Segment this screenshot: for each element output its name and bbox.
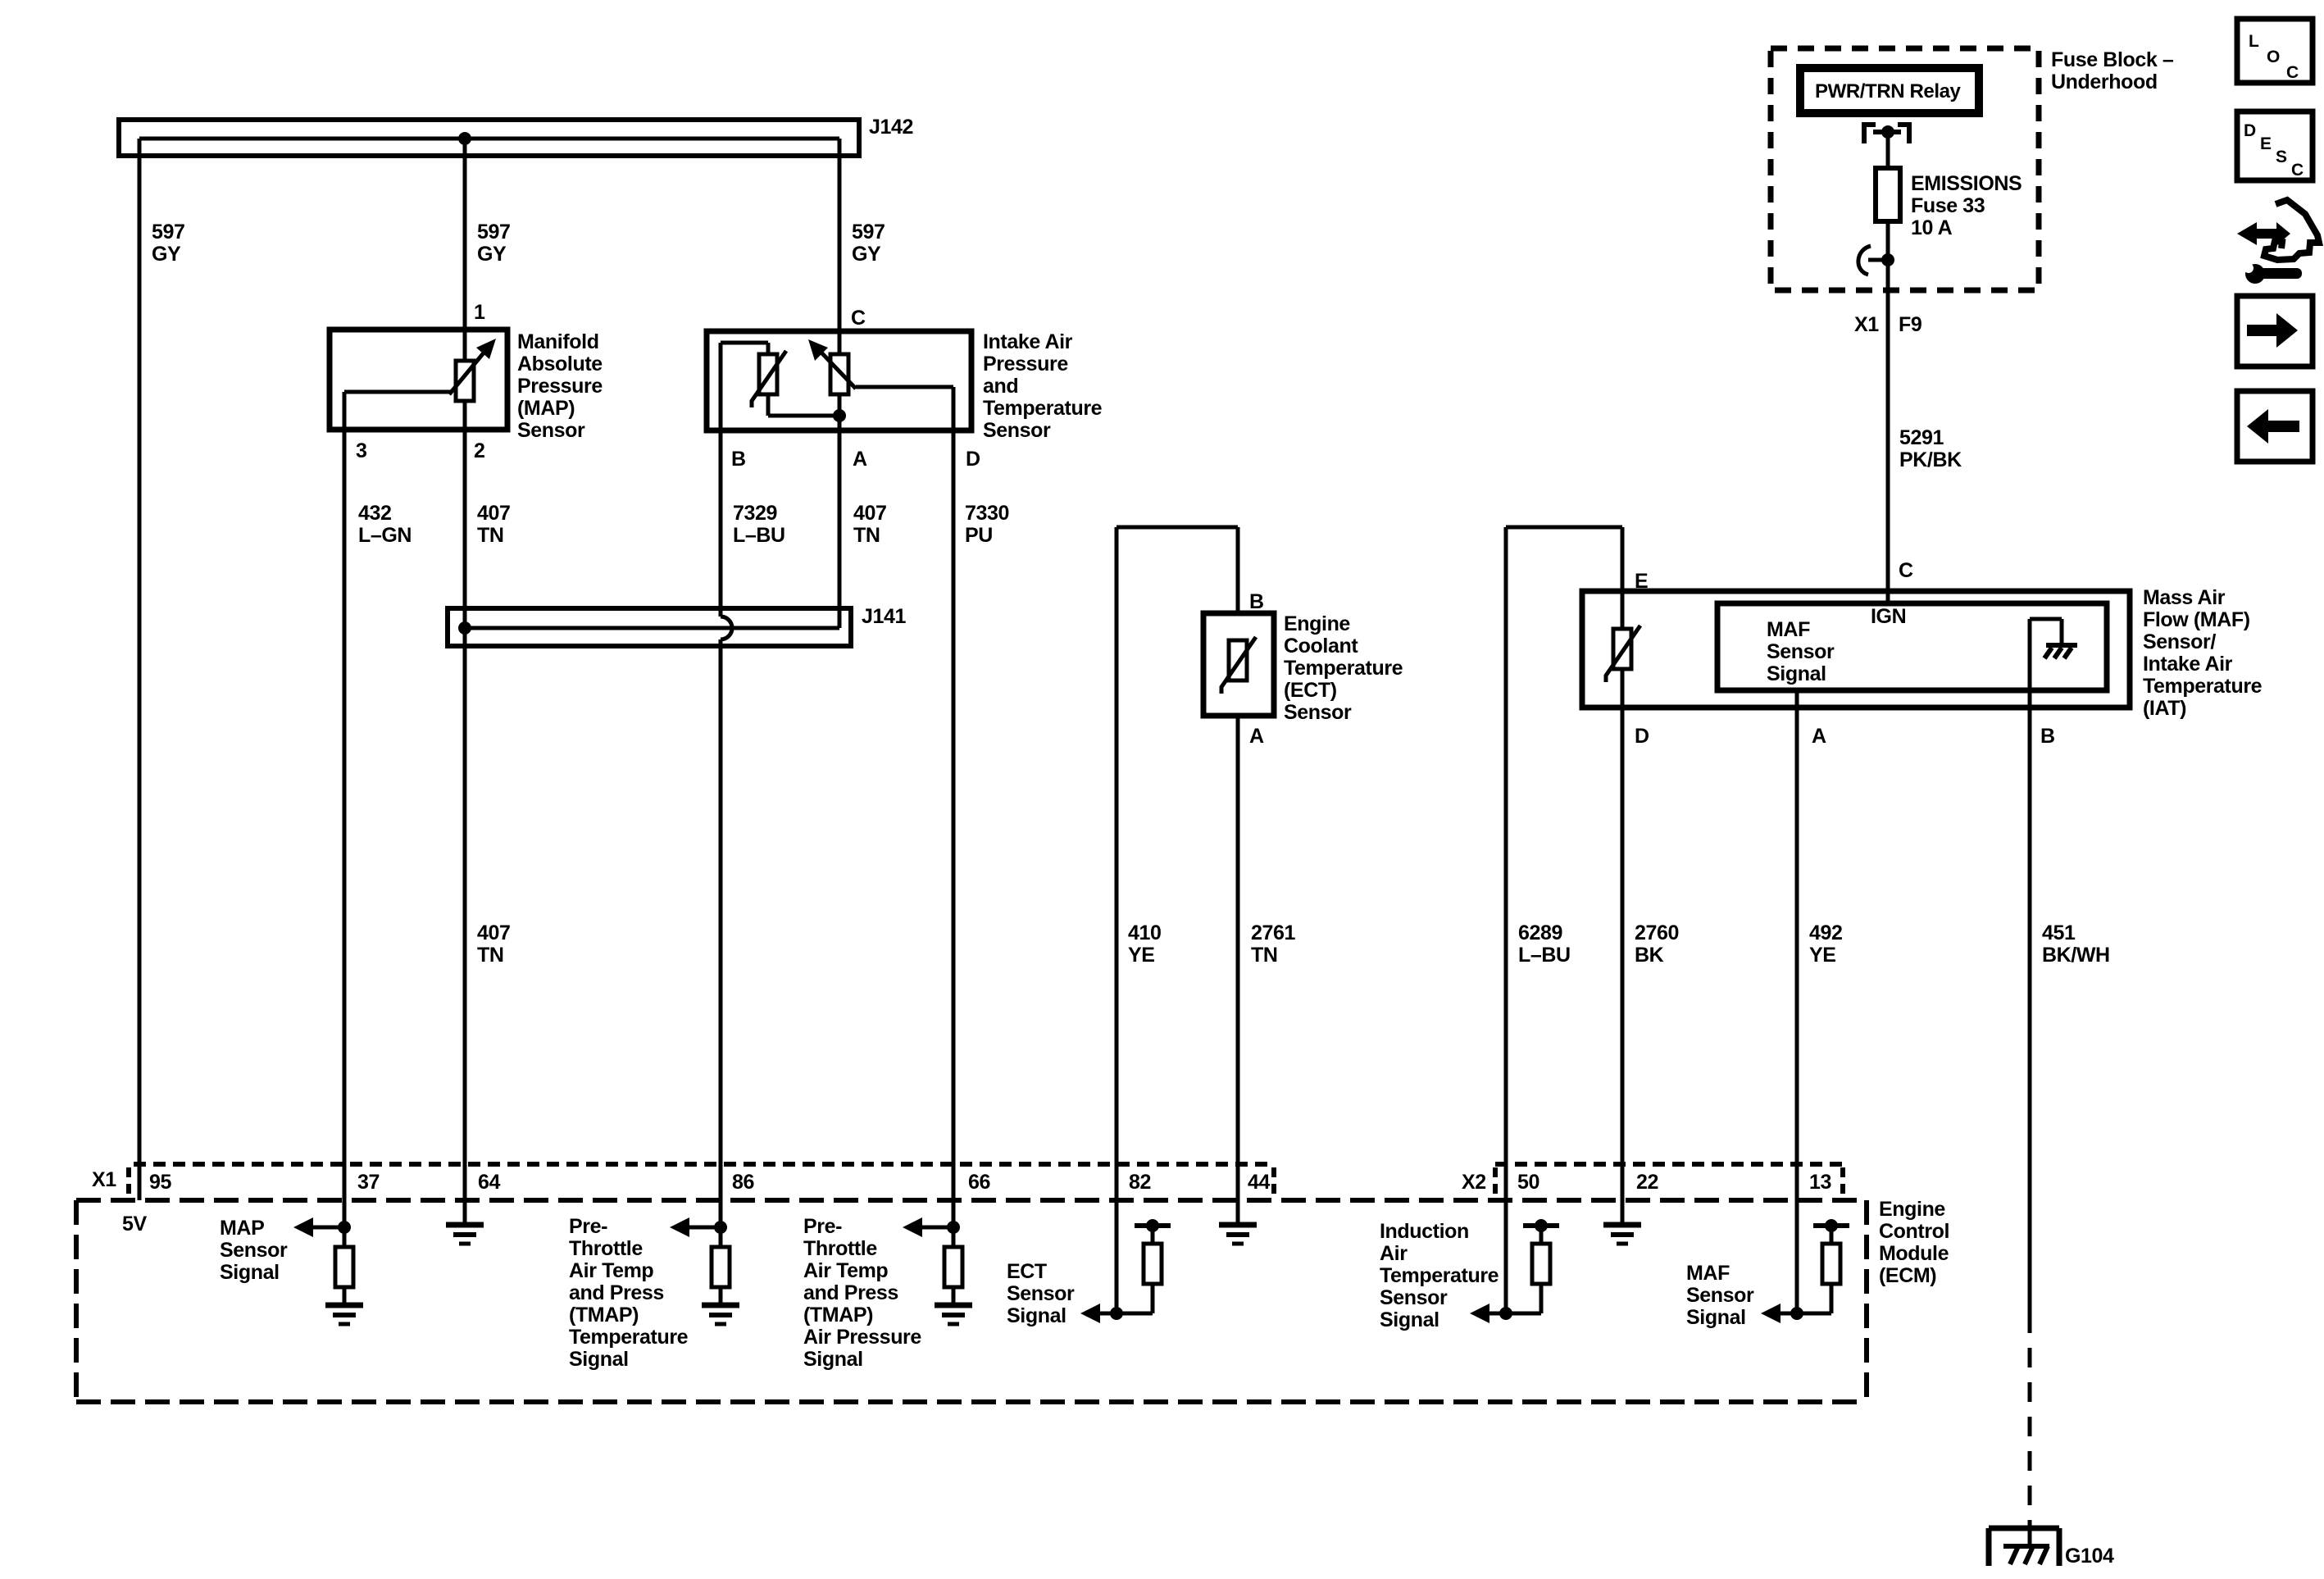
svg-text:C: C (2291, 161, 2304, 180)
svg-text:410: 410 (1128, 921, 1162, 944)
svg-text:MAF: MAF (1767, 618, 1810, 641)
svg-text:Temperature: Temperature (569, 1326, 689, 1349)
svg-text:Mass Air: Mass Air (2143, 586, 2226, 609)
svg-text:Sensor: Sensor (517, 419, 585, 442)
svg-text:5291: 5291 (1899, 426, 1944, 449)
svg-text:Signal: Signal (569, 1348, 629, 1371)
svg-text:E: E (1635, 570, 1648, 593)
svg-text:(ECT): (ECT) (1284, 679, 1337, 702)
svg-text:Sensor/: Sensor/ (2143, 630, 2216, 653)
svg-text:C: C (1899, 559, 1913, 582)
svg-text:D: D (2244, 121, 2256, 140)
svg-text:Signal: Signal (803, 1348, 863, 1371)
svg-text:Flow (MAF): Flow (MAF) (2143, 608, 2250, 631)
svg-text:and Press: and Press (803, 1281, 898, 1304)
svg-text:J141: J141 (862, 605, 907, 628)
svg-text:ECT: ECT (1007, 1260, 1047, 1283)
svg-text:PU: PU (965, 524, 993, 547)
svg-text:S: S (2276, 148, 2287, 166)
svg-text:J142: J142 (869, 116, 913, 139)
svg-text:Sensor: Sensor (220, 1239, 288, 1262)
svg-text:Signal: Signal (1380, 1308, 1439, 1331)
svg-text:X1: X1 (92, 1168, 116, 1191)
svg-text:L–GN: L–GN (358, 524, 412, 547)
svg-text:YE: YE (1128, 944, 1155, 967)
svg-text:Module: Module (1879, 1242, 1949, 1265)
svg-text:Intake Air: Intake Air (983, 330, 1073, 353)
svg-text:5V: 5V (122, 1213, 148, 1235)
svg-text:Fuse 33: Fuse 33 (1911, 194, 1985, 217)
svg-text:Sensor: Sensor (1380, 1286, 1448, 1309)
svg-text:F9: F9 (1899, 313, 1922, 336)
svg-text:2761: 2761 (1251, 921, 1296, 944)
svg-text:86: 86 (732, 1171, 754, 1194)
svg-text:(ECM): (ECM) (1879, 1264, 1936, 1287)
svg-text:82: 82 (1129, 1171, 1151, 1194)
svg-text:407: 407 (477, 921, 511, 944)
svg-text:X1: X1 (1854, 313, 1879, 336)
svg-text:Signal: Signal (1007, 1304, 1066, 1327)
svg-text:50: 50 (1517, 1171, 1539, 1194)
svg-text:Engine: Engine (1879, 1198, 1945, 1221)
svg-text:(IAT): (IAT) (2143, 697, 2186, 720)
svg-text:3: 3 (356, 439, 367, 462)
svg-text:451: 451 (2042, 921, 2076, 944)
svg-text:Sensor: Sensor (983, 419, 1051, 442)
svg-text:PK/BK: PK/BK (1899, 448, 1962, 471)
svg-text:B: B (1249, 590, 1264, 613)
svg-text:O: O (2267, 48, 2280, 66)
svg-text:GY: GY (852, 243, 881, 266)
svg-text:G104: G104 (2065, 1545, 2114, 1568)
svg-text:Coolant: Coolant (1284, 635, 1358, 658)
svg-text:L–BU: L–BU (733, 524, 785, 547)
svg-text:Temperature: Temperature (1284, 657, 1403, 680)
svg-text:EMISSIONS: EMISSIONS (1911, 172, 2022, 195)
svg-text:Underhood: Underhood (2051, 71, 2158, 93)
svg-text:Air: Air (1380, 1242, 1408, 1265)
svg-text:GY: GY (152, 243, 181, 266)
svg-text:37: 37 (357, 1171, 380, 1194)
svg-text:YE: YE (1809, 944, 1836, 967)
svg-text:Signal: Signal (220, 1261, 280, 1284)
svg-text:GY: GY (477, 243, 507, 266)
svg-text:Intake Air: Intake Air (2143, 653, 2233, 676)
svg-text:Sensor: Sensor (1686, 1284, 1754, 1307)
svg-text:597: 597 (152, 221, 185, 243)
svg-text:(MAP): (MAP) (517, 397, 575, 420)
svg-text:6289: 6289 (1518, 921, 1562, 944)
svg-text:Temperature: Temperature (983, 397, 1103, 420)
svg-text:44: 44 (1248, 1171, 1271, 1194)
svg-text:Air Temp: Air Temp (569, 1259, 653, 1282)
svg-text:Absolute: Absolute (517, 353, 603, 375)
svg-text:Signal: Signal (1686, 1306, 1746, 1329)
svg-text:L–BU: L–BU (1518, 944, 1571, 967)
svg-text:10 A: 10 A (1911, 216, 1953, 239)
svg-text:A: A (1249, 725, 1264, 748)
svg-text:A: A (1812, 725, 1826, 748)
svg-text:B: B (2040, 725, 2055, 748)
svg-text:C: C (851, 307, 866, 330)
svg-text:7330: 7330 (965, 502, 1009, 525)
svg-text:Throttle: Throttle (803, 1237, 877, 1260)
svg-text:A: A (853, 448, 867, 471)
svg-text:Air Temp: Air Temp (803, 1259, 888, 1282)
svg-text:Sensor: Sensor (1284, 701, 1352, 724)
svg-text:66: 66 (968, 1171, 990, 1194)
svg-text:B: B (731, 448, 746, 471)
svg-text:492: 492 (1809, 921, 1843, 944)
svg-text:407: 407 (853, 502, 887, 525)
svg-text:2: 2 (474, 439, 485, 462)
svg-text:64: 64 (478, 1171, 501, 1194)
svg-text:Induction: Induction (1380, 1220, 1469, 1243)
svg-text:BK/WH: BK/WH (2042, 944, 2110, 967)
svg-text:MAP: MAP (220, 1217, 264, 1240)
svg-text:432: 432 (358, 502, 392, 525)
svg-text:Fuse Block –: Fuse Block – (2051, 48, 2174, 71)
svg-text:13: 13 (1809, 1171, 1831, 1194)
svg-text:PWR/TRN Relay: PWR/TRN Relay (1815, 80, 1962, 102)
svg-text:Sensor: Sensor (1007, 1282, 1075, 1305)
svg-text:407: 407 (477, 502, 511, 525)
svg-text:Sensor: Sensor (1767, 640, 1835, 663)
svg-text:Control: Control (1879, 1220, 1949, 1243)
svg-text:and: and (983, 375, 1018, 398)
svg-text:and Press: and Press (569, 1281, 664, 1304)
svg-text:2760: 2760 (1635, 921, 1679, 944)
svg-text:(TMAP): (TMAP) (803, 1304, 873, 1326)
svg-text:597: 597 (477, 221, 511, 243)
svg-text:L: L (2249, 32, 2259, 51)
svg-text:(TMAP): (TMAP) (569, 1304, 639, 1326)
svg-text:Temperature: Temperature (1380, 1264, 1499, 1287)
svg-text:Throttle: Throttle (569, 1237, 643, 1260)
svg-text:IGN: IGN (1871, 605, 1906, 628)
svg-text:TN: TN (477, 944, 504, 967)
svg-text:Engine: Engine (1284, 612, 1350, 635)
svg-text:X2: X2 (1462, 1171, 1486, 1194)
svg-text:MAF: MAF (1686, 1262, 1730, 1285)
svg-text:E: E (2260, 134, 2272, 153)
svg-text:95: 95 (149, 1171, 172, 1194)
svg-text:Signal: Signal (1767, 662, 1826, 685)
svg-text:22: 22 (1636, 1171, 1658, 1194)
svg-text:C: C (2286, 63, 2299, 82)
svg-text:BK: BK (1635, 944, 1664, 967)
svg-text:Pressure: Pressure (983, 353, 1068, 375)
svg-text:Pre-: Pre- (803, 1215, 842, 1238)
svg-text:D: D (966, 448, 980, 471)
svg-text:TN: TN (1251, 944, 1278, 967)
svg-text:Air Pressure: Air Pressure (803, 1326, 921, 1349)
svg-text:1: 1 (474, 301, 485, 324)
svg-text:TN: TN (477, 524, 504, 547)
svg-text:7329: 7329 (733, 502, 777, 525)
svg-text:Temperature: Temperature (2143, 675, 2263, 698)
svg-text:D: D (1635, 725, 1649, 748)
svg-text:Pre-: Pre- (569, 1215, 607, 1238)
svg-text:597: 597 (852, 221, 885, 243)
svg-text:TN: TN (853, 524, 880, 547)
svg-text:Pressure: Pressure (517, 375, 603, 398)
svg-text:Manifold: Manifold (517, 330, 599, 353)
